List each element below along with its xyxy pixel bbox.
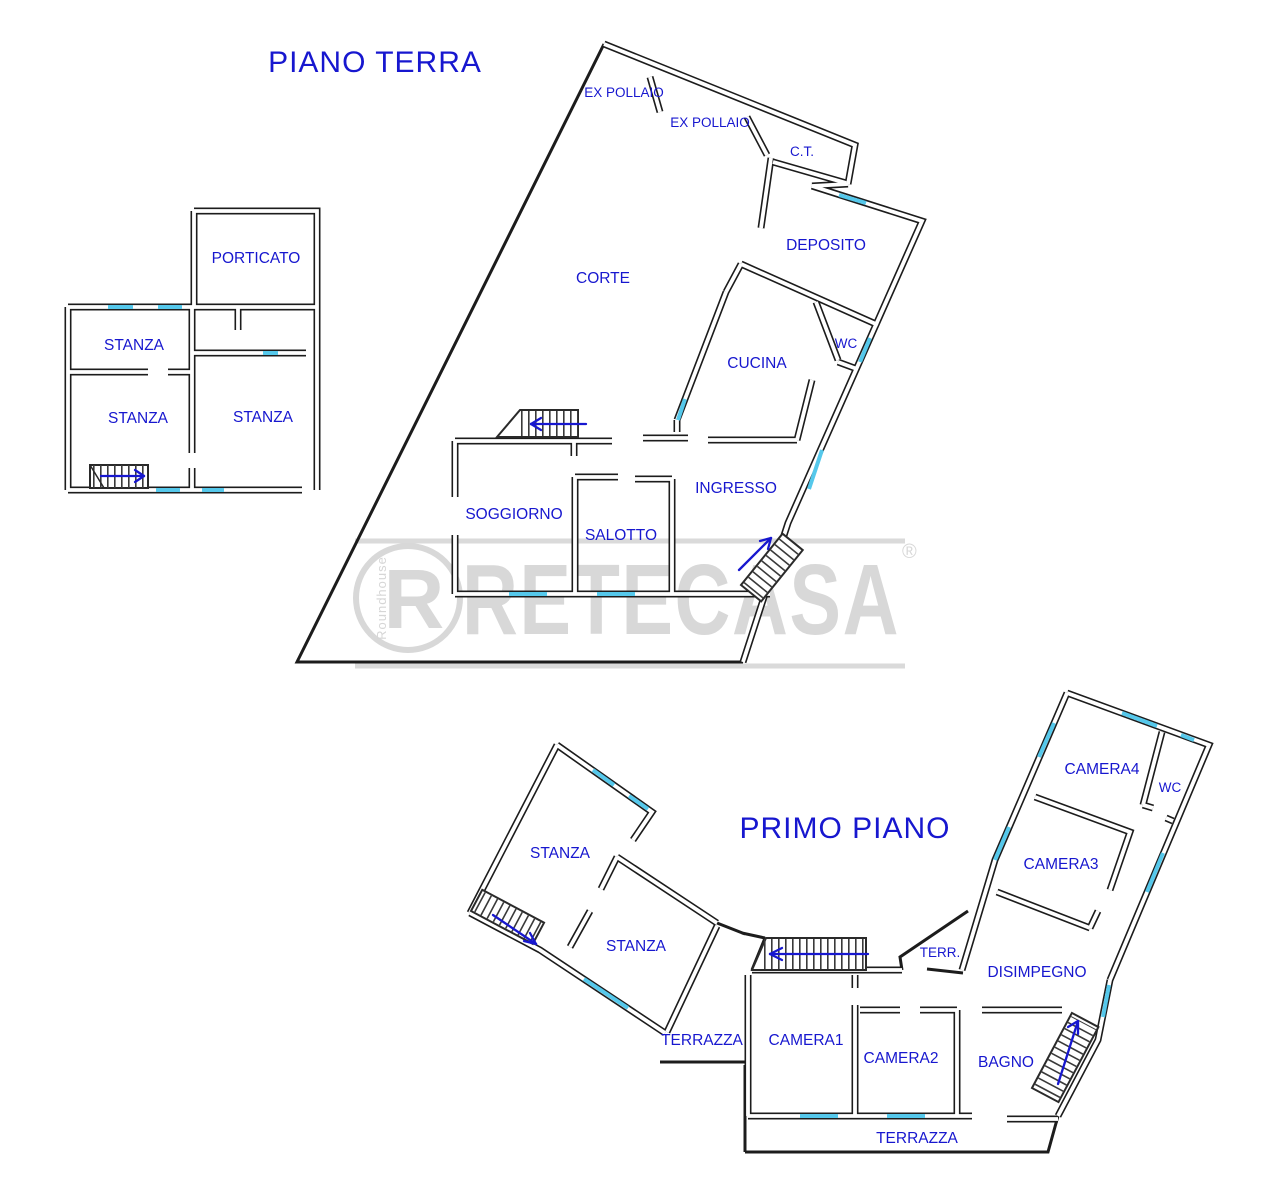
watermark-logo-letter: R: [384, 552, 445, 646]
room-label-cucina: CUCINA: [727, 355, 787, 372]
room-label-annex-stanza-a: STANZA: [104, 337, 165, 354]
watermark-registered-mark: ®: [902, 541, 917, 563]
room-label-ex-pollaio-a: EX POLLAIO: [584, 85, 664, 100]
ground-floor-title: PIANO TERRA: [268, 46, 482, 79]
room-label-deposito: DEPOSITO: [786, 237, 866, 254]
room-label-salotto: SALOTTO: [585, 527, 657, 544]
watermark-logo-side-text: Roundhouse: [374, 556, 389, 640]
room-label-corte: CORTE: [576, 270, 630, 287]
room-label-terr: TERR.: [920, 945, 961, 960]
room-label-porticato: PORTICATO: [212, 250, 301, 267]
room-label-annex-stanza-b: STANZA: [108, 410, 169, 427]
first-wall-outline: [470, 693, 1209, 1119]
floorplan-page: R Roundhouse RETECASA ®: [0, 0, 1280, 1191]
room-label-camera2: CAMERA2: [864, 1050, 939, 1067]
first-long-staircase: [752, 938, 868, 970]
first-floor-title: PRIMO PIANO: [739, 812, 950, 845]
room-label-terrazza-left: TERRAZZA: [661, 1032, 743, 1049]
room-label-bagno: BAGNO: [978, 1054, 1034, 1071]
room-label-first-stanza-b: STANZA: [606, 938, 667, 955]
room-label-camera4: CAMERA4: [1065, 761, 1140, 778]
room-label-first-stanza-a: STANZA: [530, 845, 591, 862]
annex-staircase: [90, 465, 148, 488]
room-label-camera3: CAMERA3: [1024, 856, 1099, 873]
room-label-ex-pollaio-b: EX POLLAIO: [670, 115, 750, 130]
room-label-disimpegno: DISIMPEGNO: [987, 964, 1086, 981]
room-label-wc-first: WC: [1159, 780, 1182, 795]
room-label-camera1: CAMERA1: [769, 1032, 844, 1049]
room-label-wc-ground: WC: [835, 336, 858, 351]
soggiorno-staircase: [497, 410, 586, 437]
room-label-soggiorno: SOGGIORNO: [465, 506, 562, 523]
watermark: R Roundhouse RETECASA ®: [355, 541, 917, 666]
room-label-ct: C.T.: [790, 144, 814, 159]
floorplan-svg: R Roundhouse RETECASA ®: [0, 0, 1280, 1191]
watermark-brand: RETECASA: [462, 544, 900, 656]
room-label-annex-stanza-c: STANZA: [233, 409, 294, 426]
room-label-ingresso: INGRESSO: [695, 480, 777, 497]
room-label-terrazza-bottom: TERRAZZA: [876, 1130, 958, 1147]
first-wall-fill: [470, 693, 1209, 1119]
